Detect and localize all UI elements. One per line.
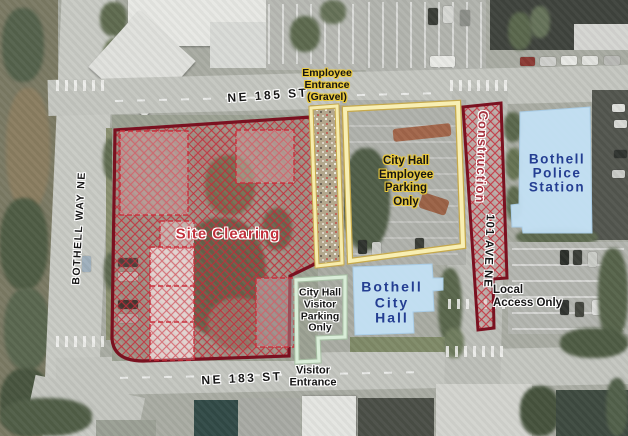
visitor-parking-label: City Hall Visitor Parking Only	[299, 288, 341, 335]
employee-parking-label: City Hall Employee Parking Only	[379, 155, 433, 209]
city-hall-label: Bothell City Hall	[361, 279, 422, 326]
aerial-detail	[256, 278, 294, 347]
local-access-label: Local Access Only	[493, 284, 562, 310]
visitor-entrance-label: Visitor Entrance	[289, 365, 336, 390]
employee-entrance-label: Employee Entrance (Gravel)	[302, 68, 352, 104]
aerial-map: NE 185 ST Employee Entrance (Gravel) Cit…	[0, 0, 628, 436]
aerial-detail	[120, 131, 188, 215]
aerial-detail	[236, 130, 294, 183]
aerial-detail	[150, 247, 194, 360]
site-clearing-label: Site Clearing	[176, 227, 281, 244]
construction-label: Construction	[472, 110, 490, 203]
street-label-101-ave: 101 AVE NE	[480, 214, 496, 288]
police-station-label: Bothell Police Station	[529, 153, 585, 196]
